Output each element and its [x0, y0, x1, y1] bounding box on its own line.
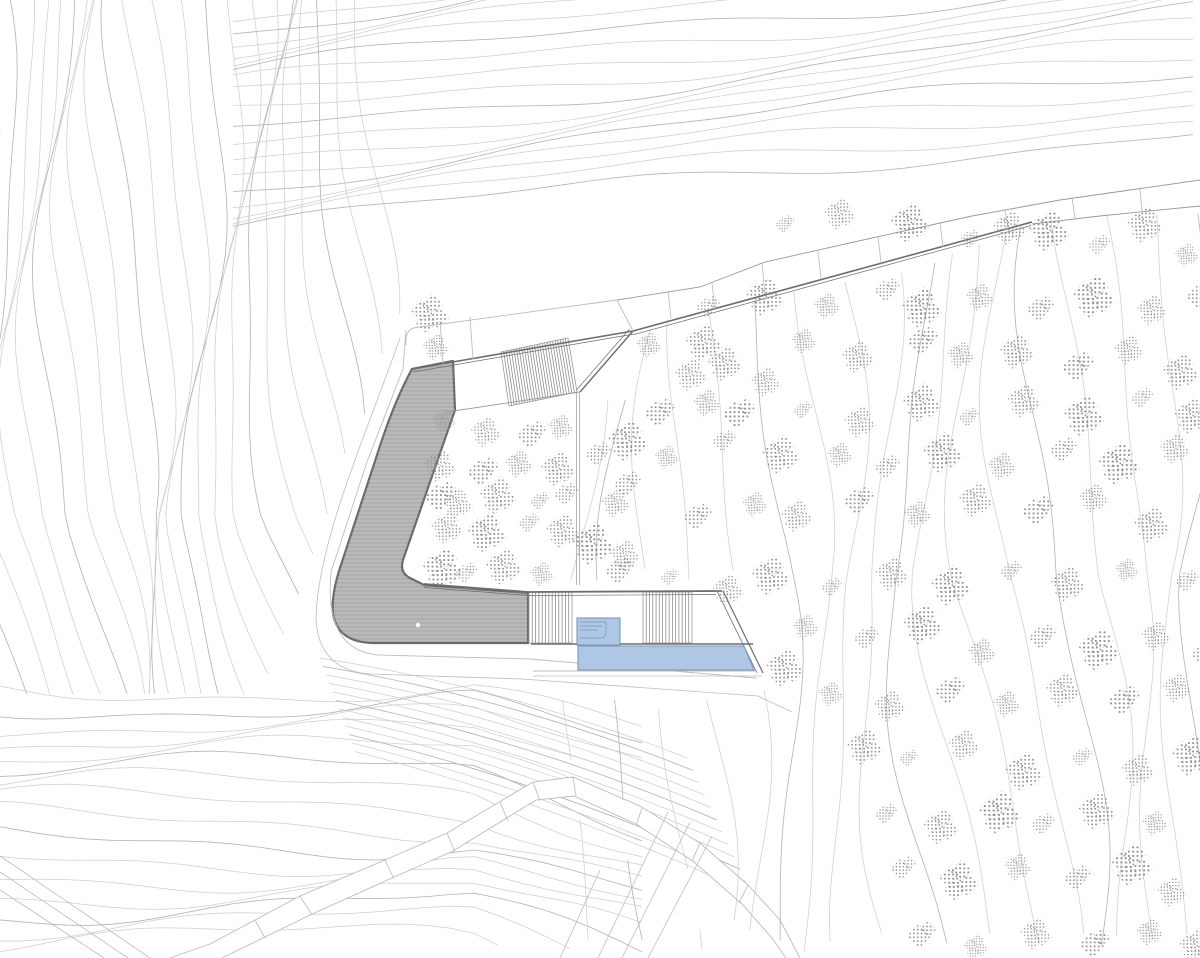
site-plan-canvas — [0, 0, 1200, 958]
architectural-site-plan — [0, 0, 1200, 958]
